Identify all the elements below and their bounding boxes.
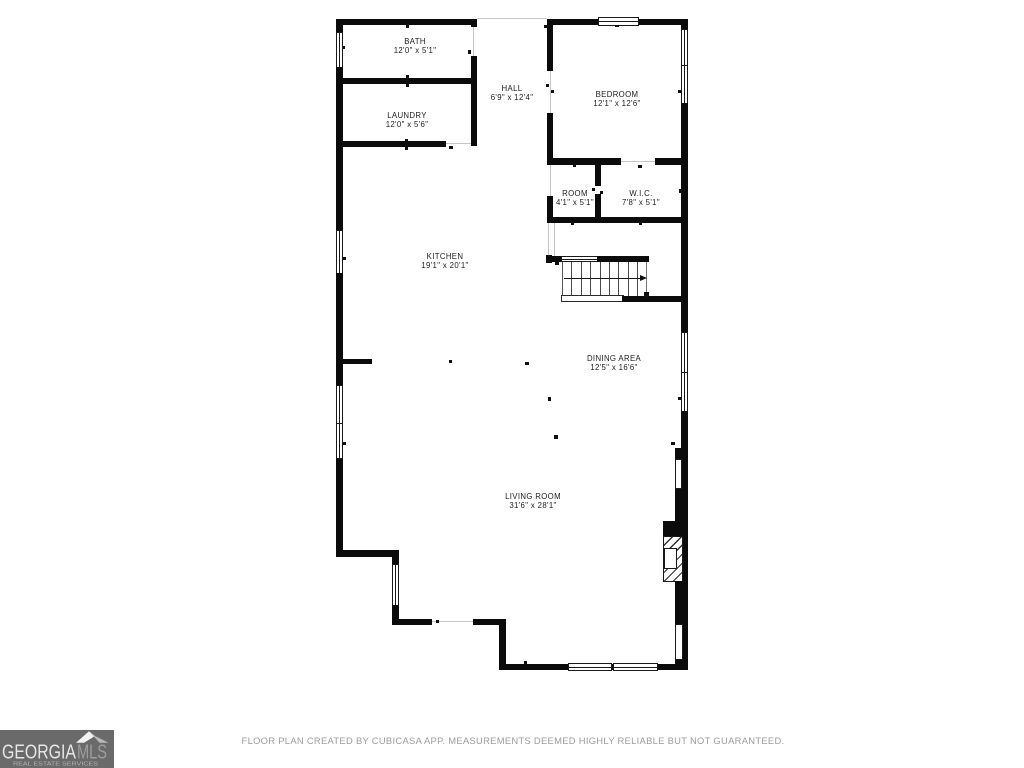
svg-text:GEORGIA: GEORGIA (2, 741, 76, 764)
svg-text:MLS: MLS (77, 741, 107, 764)
svg-text:REAL ESTATE SERVICES: REAL ESTATE SERVICES (13, 761, 99, 767)
